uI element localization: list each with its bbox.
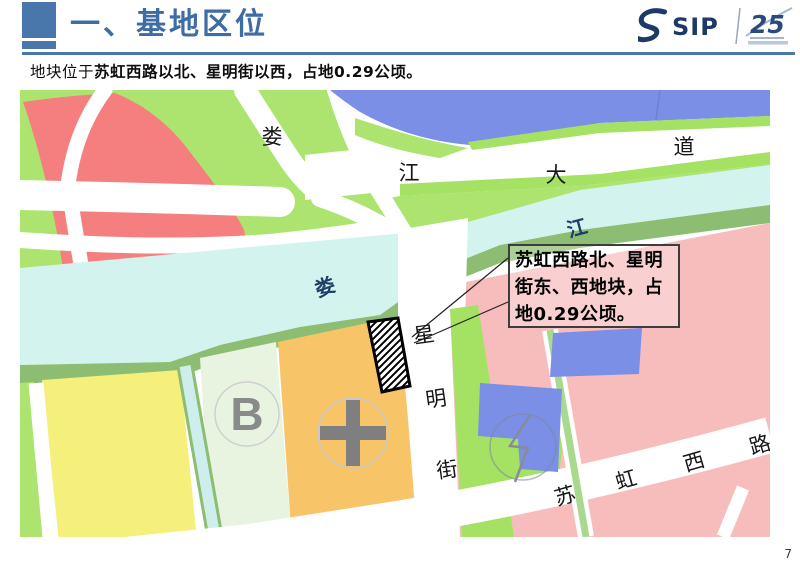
site-callout: 苏虹西路北、星明街东、西地块，占地0.29公顷。: [508, 244, 680, 328]
title-accent-bar: [22, 41, 56, 49]
subtitle-emphasis: 苏虹西路以北、星明街以西，占地0.29公顷。: [94, 63, 422, 81]
subtitle-prefix: 地块位于: [30, 63, 94, 81]
yellow-parcel: [42, 370, 198, 537]
street-label-char: 星: [412, 322, 436, 349]
anniversary-25-mark: 25: [746, 8, 792, 45]
title-accent-square: [22, 2, 56, 38]
site-callout-text: 苏虹西路北、星明街东、西地块，占地0.29公顷。: [515, 250, 663, 325]
logo-divider: [736, 8, 740, 44]
avenue-label-char: 大: [546, 163, 567, 187]
page-title: 一、基地区位: [70, 6, 268, 44]
slide: 一、基地区位 SIP 25 地块位于苏虹西路以北、星明街以西，占地0.29公顷。: [0, 0, 800, 565]
sip-logo: SIP 25: [638, 2, 796, 50]
street-label-char: 街: [435, 457, 459, 484]
avenue-label-char: 娄: [262, 125, 283, 149]
avenue-label-char: 道: [674, 135, 695, 159]
svg-text:25: 25: [750, 10, 785, 39]
slide-subtitle: 地块位于苏虹西路以北、星明街以西，占地0.29公顷。: [30, 60, 422, 82]
sip-swoosh-icon: [638, 11, 665, 40]
avenue-label-char: 江: [399, 161, 420, 185]
page-number: 7: [784, 547, 792, 561]
sip-wordmark: SIP: [672, 13, 719, 41]
parcel-label-b: B: [230, 388, 263, 440]
header-divider: [22, 52, 795, 55]
street-label-char: 明: [424, 386, 448, 413]
site-map: B 娄 江 大: [20, 90, 770, 537]
